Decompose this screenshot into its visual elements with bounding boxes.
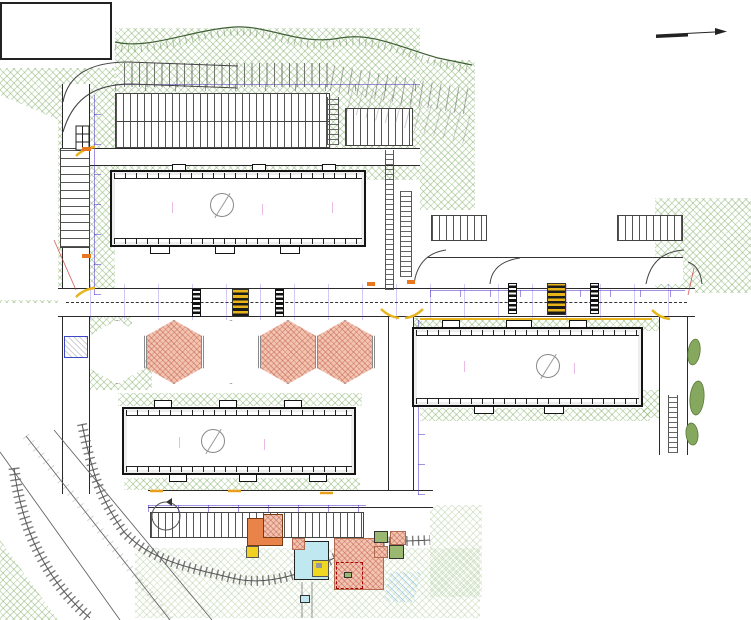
building-number-badge [210,193,234,217]
green-area [420,60,475,210]
transformer-substation [64,336,88,358]
service-drive-road [75,148,420,166]
speed-bump [275,289,284,317]
playground-pink [374,546,388,558]
parking-lot [431,215,487,241]
boundary-fence [385,150,394,290]
playground-green [374,531,388,543]
dimension-chain [94,95,101,295]
building-7 [110,170,366,247]
entrance-porch [309,474,327,482]
building-4 [412,327,643,407]
dimension-chain [148,505,366,512]
playground-yellow [246,546,259,558]
side-drive-road [388,317,414,497]
survey-ticks [90,284,690,320]
site-traffic-plan [0,0,751,620]
entrance-porch [544,406,564,414]
speed-bump [508,283,517,314]
entrance-porch [280,246,300,254]
playground-green [389,545,404,559]
building-modules [114,238,362,244]
stairs-ramp [327,97,339,145]
stairs-ramp [668,395,678,453]
balcony-bay [252,164,266,171]
speed-bump [590,283,599,314]
hex-paver-pink [146,320,202,384]
entrance-porch [239,474,257,482]
parking-lot [60,148,90,248]
playground-pink [390,531,406,545]
entrance-porch [284,400,302,408]
parking-midline [116,121,329,122]
hex-paver-pink [260,320,316,384]
entrance-porch [215,246,235,254]
playground-pink [292,538,305,550]
green-area [430,505,482,597]
hex-paver [203,320,259,384]
green-area [0,540,58,620]
building-modules [416,330,639,336]
building-modules [114,173,362,179]
speed-bump [192,289,201,317]
service-building-cyan [300,595,310,603]
legend-box [0,2,112,60]
pedestrian-crosswalk [547,283,566,315]
dou-frontage-drive [428,257,683,284]
stairs-ramp [400,191,412,277]
entrance-porch [506,320,532,328]
parking-lot [617,215,683,241]
hex-paver-pink [317,320,373,384]
entrance-porch [154,400,172,408]
dimension-chain [115,84,420,91]
building-number-badge [201,429,225,453]
balcony-bay [172,164,186,171]
building-8 [122,407,356,475]
entrance-porch [169,474,187,482]
building-number-badge [536,354,560,378]
building-modules [126,466,352,472]
green-strip [420,408,650,421]
building-modules [126,410,352,416]
playground-item [316,563,322,568]
entrance-porch [569,320,587,328]
entrance-porch [219,400,237,408]
playground-item [344,572,352,578]
entrance-porch [474,406,494,414]
entrance-porch [150,246,170,254]
vacant-plot [0,95,58,300]
service-building-annex [263,514,283,538]
balcony-bay [322,164,336,171]
parking-lot [115,93,330,148]
pedestrian-crosswalk [232,289,249,317]
entrance-porch [442,320,460,328]
parking-lot [345,108,413,146]
building-modules [416,398,639,404]
